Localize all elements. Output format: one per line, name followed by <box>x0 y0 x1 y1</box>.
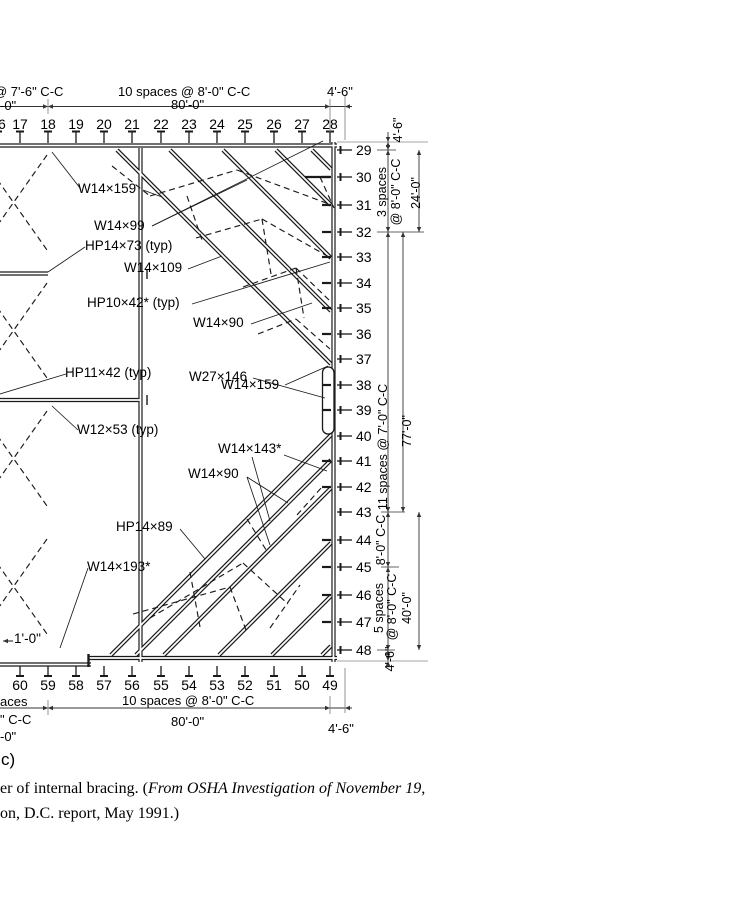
dim-top-right: 4'-6" <box>327 84 353 99</box>
dim-top-left-total: -0" <box>0 98 16 113</box>
dim-right-24-0: 24'-0" <box>409 177 423 209</box>
caption-roman: er of internal bracing. ( <box>0 780 148 797</box>
grid-number: 31 <box>356 197 372 213</box>
grid-number: 21 <box>124 116 140 132</box>
label-hp14x89: HP14×89 <box>116 519 173 534</box>
grid-number: 57 <box>96 677 112 693</box>
label-w14x90-bottom: W14×90 <box>188 466 239 481</box>
figure-part-label: c) <box>1 750 15 770</box>
grid-number: 20 <box>96 116 112 132</box>
label-w14x90-top: W14×90 <box>193 315 244 330</box>
grid-number: 41 <box>356 453 372 469</box>
grid-number: 36 <box>356 326 372 342</box>
label-w12x53: W12×53 (typ) <box>77 422 158 437</box>
grid-number: 37 <box>356 351 372 367</box>
grid-ticks <box>0 132 352 677</box>
grid-number: 39 <box>356 402 372 418</box>
dim-top-total: 80'-0" <box>171 97 204 112</box>
dim-top-left-spacing: @ 7'-6" C-C <box>0 84 63 99</box>
label-hp14x73: HP14×73 (typ) <box>85 238 172 253</box>
grid-number: 17 <box>12 116 28 132</box>
grid-number: 40 <box>356 428 372 444</box>
label-w14x159-top: W14×159 <box>78 181 136 196</box>
figure-caption-line1: er of internal bracing. (From OSHA Inves… <box>0 780 425 798</box>
dim-bottom-right: 4'-6" <box>328 721 354 736</box>
grid-number: 38 <box>356 377 372 393</box>
w27-girder <box>323 367 335 434</box>
dim-right-4-6-top: 4'-6" <box>391 118 405 143</box>
grid-number: 28 <box>322 116 338 132</box>
figure-caption-line2: on, D.C. report, May 1991.) <box>0 805 179 823</box>
grid-number: 43 <box>356 504 372 520</box>
grid-number: 54 <box>181 677 197 693</box>
grid-number: 22 <box>153 116 169 132</box>
dim-right-11-spaces: 11 spaces @ 7'-0" C-C <box>376 384 390 510</box>
grid-number: 33 <box>356 249 372 265</box>
framing-plan-figure: @ 7'-6" C-C -0" 10 spaces @ 8'-0" C-C 80… <box>0 0 729 900</box>
grid-number: 51 <box>266 677 282 693</box>
grid-number: 60 <box>12 677 28 693</box>
dim-right-40-0: 40'-0" <box>400 592 414 624</box>
grid-number: 26 <box>266 116 282 132</box>
grid-number: 42 <box>356 479 372 495</box>
grid-number: 23 <box>181 116 197 132</box>
grid-number: 46 <box>356 587 372 603</box>
dim-right-5-spaces-cc: @ 8'-0" C-C <box>385 574 399 641</box>
label-w14x109: W14×109 <box>124 260 182 275</box>
dashed-bracing <box>0 155 334 634</box>
grid-number: 24 <box>209 116 225 132</box>
dim-right-5-spaces: 5 spaces <box>372 583 386 633</box>
leader-lines <box>0 141 330 648</box>
grid-number: 45 <box>356 559 372 575</box>
label-offset-1-0: 1'-0" <box>14 631 41 646</box>
dim-right-3-spaces-cc: @ 8'-0" C-C <box>389 159 403 226</box>
beams-and-columns <box>0 142 337 667</box>
dim-bottom-left-spacing: aces <box>0 694 27 709</box>
grid-number: 47 <box>356 614 372 630</box>
label-w14x143: W14×143* <box>218 441 281 456</box>
grid-number: 30 <box>356 169 372 185</box>
grid-number: 59 <box>40 677 56 693</box>
dim-right-77-0: 77'-0" <box>400 415 414 447</box>
grid-number: 53 <box>209 677 225 693</box>
caption-italic: From OSHA Investigation of November 19, <box>148 780 425 797</box>
label-w27x146: W27×146 <box>189 369 247 384</box>
grid-number: 27 <box>294 116 310 132</box>
grid-number: 58 <box>68 677 84 693</box>
dim-bottom-left-total: -0" <box>0 729 16 744</box>
grid-number: 19 <box>68 116 84 132</box>
grid-number: 56 <box>124 677 140 693</box>
grid-number: 18 <box>40 116 56 132</box>
label-hp11x42: HP11×42 (typ) <box>65 365 151 380</box>
grid-number: 55 <box>153 677 169 693</box>
grid-number: 29 <box>356 142 372 158</box>
grid-number: 44 <box>356 532 372 548</box>
dim-bottom-total: 80'-0" <box>171 714 204 729</box>
grid-number: 50 <box>294 677 310 693</box>
grid-number: 34 <box>356 275 372 291</box>
dim-right-3-spaces: 3 spaces <box>375 167 389 217</box>
dim-bottom-spacing: 10 spaces @ 8'-0" C-C <box>122 693 254 708</box>
grid-number: 49 <box>322 677 338 693</box>
grid-number: 52 <box>237 677 253 693</box>
grid-number: 16 <box>0 116 6 132</box>
dim-right-8-0-cc: 8'-0" C-C <box>374 515 388 566</box>
dim-right-4-6-bottom: 4'-6" <box>383 647 397 672</box>
grid-number: 32 <box>356 224 372 240</box>
grid-number: 48 <box>356 642 372 658</box>
label-w14x193: W14×193* <box>87 559 150 574</box>
label-w14x99: W14×99 <box>94 218 145 233</box>
dim-bottom-left-cc: " C-C <box>0 712 31 727</box>
label-hp10x42: HP10×42* (typ) <box>87 295 180 310</box>
grid-number: 25 <box>237 116 253 132</box>
grid-number: 35 <box>356 300 372 316</box>
